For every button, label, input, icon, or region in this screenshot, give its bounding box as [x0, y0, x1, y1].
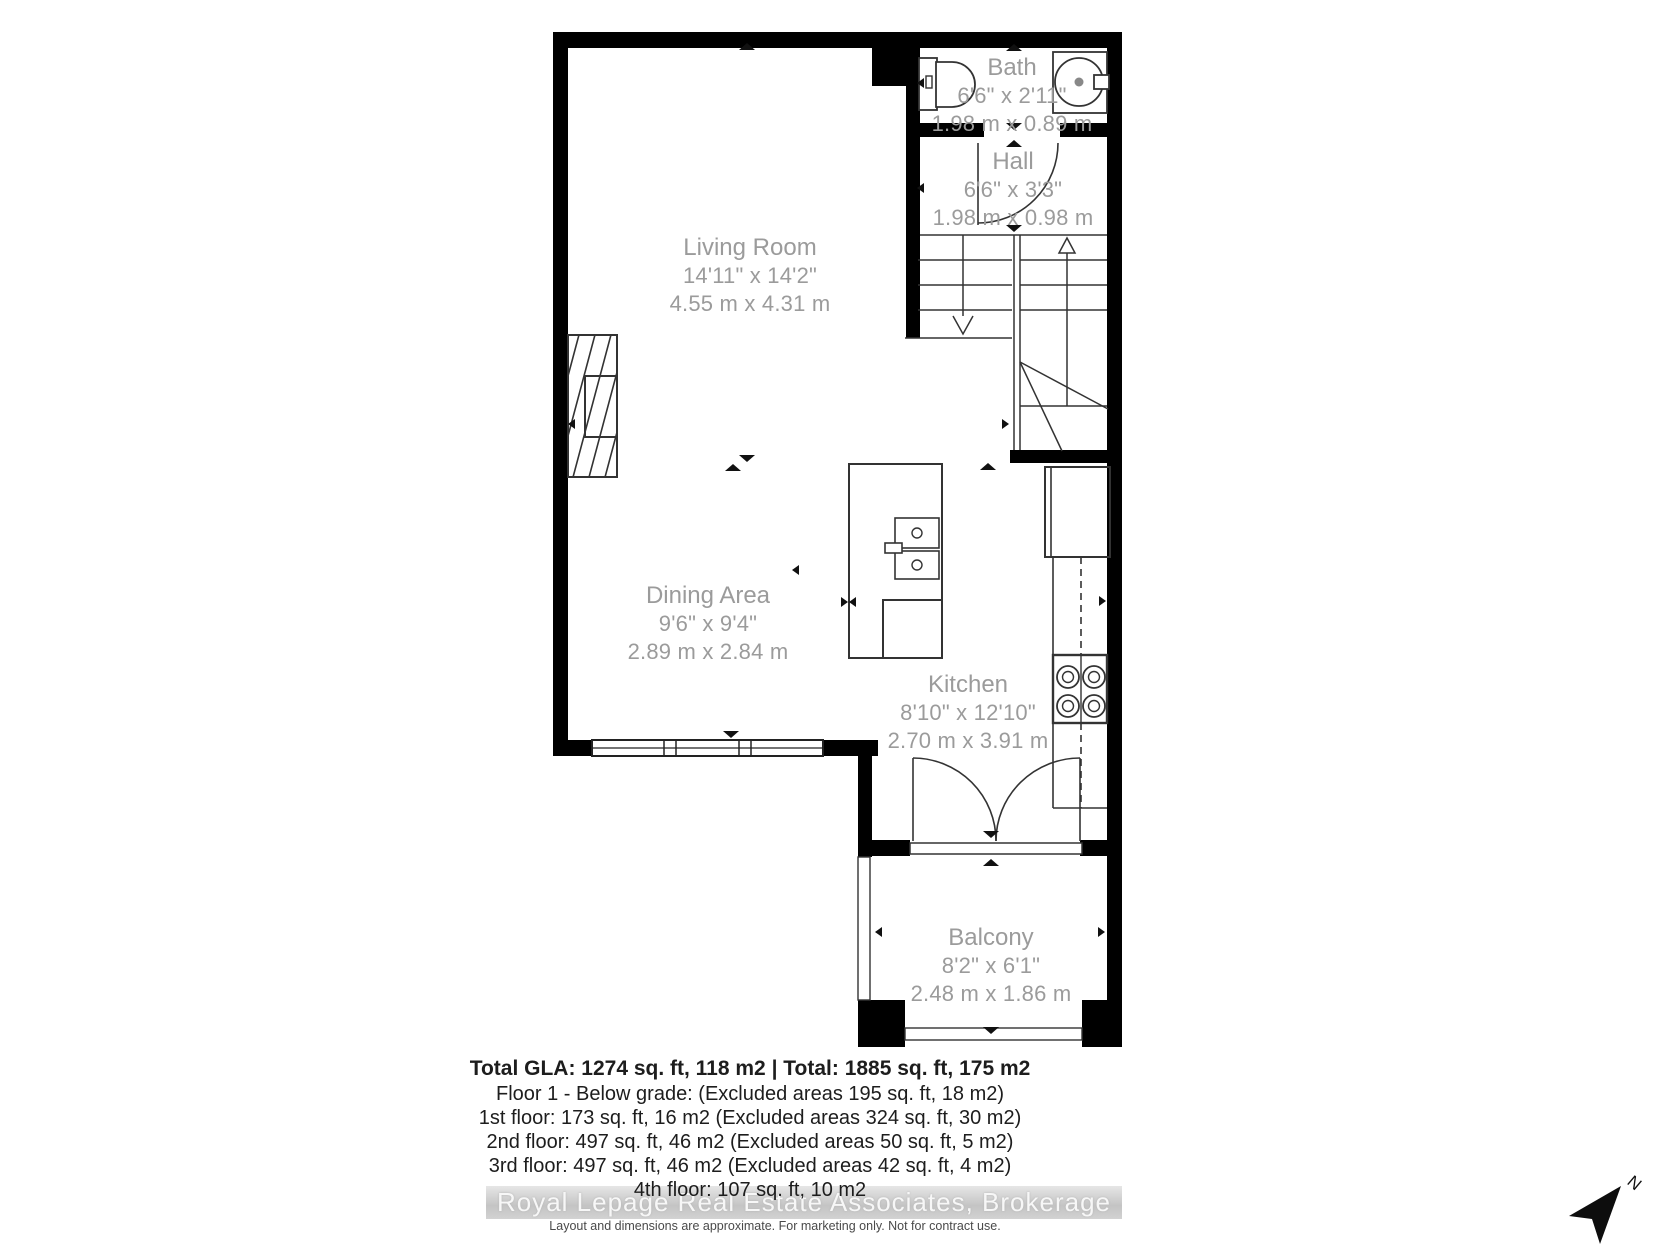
room-label-bath: Bath 6'6" x 2'11" 1.98 m x 0.89 m — [932, 54, 1093, 138]
wall-kitchen-bottom-right — [1080, 840, 1122, 856]
north-label: N — [1624, 1172, 1646, 1194]
room-label-balcony: Balcony 8'2" x 6'1" 2.48 m x 1.86 m — [911, 924, 1072, 1008]
north-arrow-icon: N — [1569, 1172, 1645, 1244]
room-label-living-room: Living Room 14'11" x 14'2" 4.55 m x 4.31… — [670, 234, 831, 318]
window-band — [592, 740, 823, 756]
dimension-marker — [983, 859, 999, 866]
wall-left — [553, 32, 568, 756]
balcony-corner-left — [858, 1000, 905, 1047]
north-arrow-shape — [1569, 1186, 1621, 1244]
stair-up-arrow — [1059, 238, 1075, 253]
balcony-rail-left — [858, 857, 870, 1000]
dimension-marker — [723, 731, 739, 738]
room-metric: 4.55 m x 4.31 m — [670, 290, 831, 318]
room-label-kitchen: Kitchen 8'10" x 12'10" 2.70 m x 3.91 m — [888, 671, 1049, 755]
room-name: Bath — [932, 54, 1093, 82]
room-imperial: 6'6" x 3'3" — [933, 176, 1094, 204]
wall-under-stair — [1010, 450, 1122, 463]
room-imperial: 14'11" x 14'2" — [670, 262, 831, 290]
sink-drain — [912, 528, 922, 538]
fridge-icon — [1045, 467, 1110, 557]
floor-plan-page: N Living Room 14'11" x 14'2" 4.55 m x 4.… — [0, 0, 1680, 1260]
wall-top — [553, 32, 1122, 48]
bath-faucet-icon — [1094, 75, 1109, 89]
floor-area-line: 4th floor: 107 sq. ft, 10 m2 — [470, 1178, 1031, 1202]
door-swing-arc — [913, 758, 996, 841]
room-imperial: 6'6" x 2'11" — [932, 82, 1093, 110]
room-name: Living Room — [670, 234, 831, 262]
floor-area-line: Floor 1 - Below grade: (Excluded areas 1… — [470, 1082, 1031, 1106]
wall-living-stair — [906, 48, 920, 338]
floor-area-line: 1st floor: 173 sq. ft, 16 m2 (Excluded a… — [470, 1106, 1031, 1130]
dimension-marker — [1006, 140, 1022, 147]
room-imperial: 9'6" x 9'4" — [628, 610, 789, 638]
dimension-marker — [980, 463, 996, 470]
total-gla: Total GLA: 1274 sq. ft, 118 m2 | Total: … — [470, 1056, 1031, 1082]
dimension-marker — [875, 927, 882, 937]
dimension-marker — [792, 565, 799, 575]
room-metric: 2.48 m x 1.86 m — [911, 980, 1072, 1008]
room-metric: 2.70 m x 3.91 m — [888, 727, 1049, 755]
stair-down-arrow — [953, 316, 973, 334]
kitchen-island — [849, 464, 942, 658]
sink-drain — [912, 560, 922, 570]
room-name: Hall — [933, 148, 1094, 176]
room-label-dining-area: Dining Area 9'6" x 9'4" 2.89 m x 2.84 m — [628, 582, 789, 666]
room-imperial: 8'10" x 12'10" — [888, 699, 1049, 727]
balcony-corner-right — [1082, 1000, 1122, 1047]
wall-corner-block — [872, 48, 908, 86]
dimension-marker — [1099, 596, 1106, 606]
kitchen-counter — [1045, 467, 1110, 808]
dimension-marker — [725, 464, 741, 471]
floor-area-line: 2nd floor: 497 sq. ft, 46 m2 (Excluded a… — [470, 1130, 1031, 1154]
stair-winder-diag — [1020, 362, 1108, 409]
dimension-marker — [739, 455, 755, 462]
dimension-marker — [841, 597, 848, 607]
room-metric: 2.89 m x 2.84 m — [628, 638, 789, 666]
wall-kitchen-bottom-left — [858, 840, 910, 856]
floor-area-line: 3rd floor: 497 sq. ft, 46 m2 (Excluded a… — [470, 1154, 1031, 1178]
disclaimer-text: Layout and dimensions are approximate. F… — [549, 1219, 1000, 1233]
stove-icon — [1053, 655, 1107, 723]
room-metric: 1.98 m x 0.89 m — [932, 110, 1093, 138]
staircase — [905, 235, 1108, 451]
wall-kitchen-left — [858, 740, 872, 857]
fireplace-icon — [524, 331, 692, 481]
kitchen-faucet-icon — [885, 543, 902, 553]
french-doors — [910, 758, 1082, 854]
dimension-marker — [1002, 419, 1009, 429]
room-label-hall: Hall 6'6" x 3'3" 1.98 m x 0.98 m — [933, 148, 1094, 232]
dimension-marker — [1098, 927, 1105, 937]
room-imperial: 8'2" x 6'1" — [911, 952, 1072, 980]
room-name: Kitchen — [888, 671, 1049, 699]
area-summary: Total GLA: 1274 sq. ft, 118 m2 | Total: … — [470, 1056, 1031, 1202]
door-threshold — [910, 843, 1082, 854]
room-name: Dining Area — [628, 582, 789, 610]
door-swing-arc — [996, 758, 1080, 841]
room-name: Balcony — [911, 924, 1072, 952]
room-metric: 1.98 m x 0.98 m — [933, 204, 1094, 232]
